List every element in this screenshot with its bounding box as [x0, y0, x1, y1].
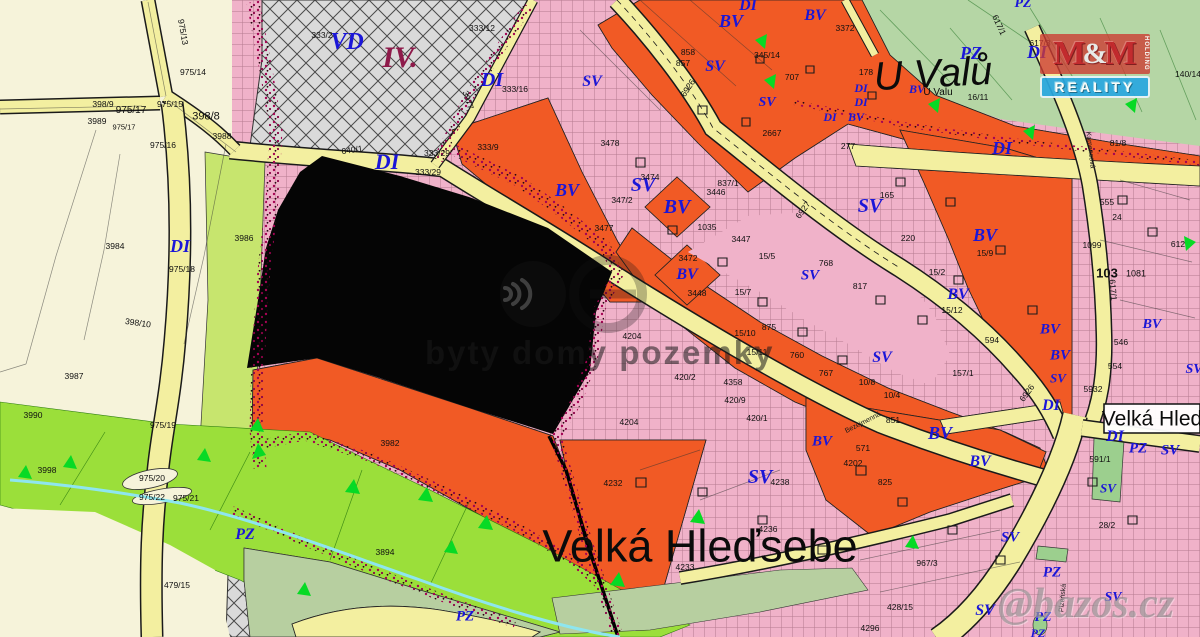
num-label-333-16: 333/16 — [502, 85, 528, 94]
zl-label-SV: SV — [705, 59, 725, 75]
num-label-554: 554 — [1108, 362, 1122, 371]
num-label-875: 875 — [762, 323, 776, 332]
num-label-3447: 3447 — [732, 235, 751, 244]
num-label-4202: 4202 — [844, 459, 863, 468]
num-label-15-12: 15/12 — [941, 306, 962, 315]
num-label-617-1: 617/1 — [1108, 279, 1118, 301]
zl-label-BV: BV — [973, 226, 997, 244]
num-label-3986: 3986 — [235, 234, 254, 243]
zl-label-DI: DI — [992, 139, 1012, 157]
num-label-420-9: 420/9 — [724, 396, 745, 405]
num-label-975-16: 975/16 — [150, 141, 176, 150]
street-label-Bezejmenn-: Bezejmenná — [844, 411, 882, 435]
num-label-3998: 3998 — [38, 466, 57, 475]
num-label-3478: 3478 — [601, 139, 620, 148]
num-label-420-1: 420/1 — [746, 414, 767, 423]
zl-label-PZ: PZ — [1034, 611, 1051, 625]
num-label-571: 571 — [856, 444, 870, 453]
zl-label-SV: SV — [1104, 591, 1121, 605]
zl-label-SV: SV — [1161, 444, 1179, 459]
num-label-3984: 3984 — [106, 242, 125, 251]
num-label-479-15: 479/15 — [164, 581, 190, 590]
logo-ampersand: & — [1083, 37, 1108, 71]
num-label-5932: 5932 — [1084, 385, 1103, 394]
num-label-3448: 3448 — [688, 289, 707, 298]
num-label-1035: 1035 — [698, 223, 717, 232]
zl-label-SV: SV — [872, 350, 892, 366]
zl-label-DI: DI — [170, 237, 190, 255]
zl-label-PZ: PZ — [1129, 442, 1147, 457]
zl-label-BV: BV — [969, 454, 990, 470]
num-label-398-9: 398/9 — [92, 100, 113, 109]
num-label-760: 760 — [790, 351, 804, 360]
zl-label-BV: BV — [676, 267, 697, 283]
num-label-333-29: 333/29 — [415, 168, 441, 177]
zl-label-BV: BV — [947, 287, 968, 303]
num-label-157-1: 157/1 — [952, 369, 973, 378]
zl-label-PZ: PZ — [1043, 566, 1061, 581]
street-label-Kamencov-: Kamencová — [1084, 131, 1095, 169]
num-label-4296: 4296 — [861, 624, 880, 633]
num-label-975-20: 975/20 — [139, 474, 165, 483]
num-label-6927: 6927 — [794, 200, 812, 220]
zl-label-BV: BV — [1040, 323, 1060, 338]
zl-label-SV: SV — [801, 269, 819, 284]
zl-label-SV: SV — [1001, 531, 1019, 546]
zl-label-BV: BV — [812, 435, 832, 450]
num-label-6926: 6926 — [1018, 383, 1036, 403]
num-label-15-7: 15/7 — [735, 288, 752, 297]
num-label-1081: 1081 — [1126, 270, 1146, 279]
num-label-591-1: 591/1 — [1089, 455, 1110, 464]
num-label-3982: 3982 — [381, 439, 400, 448]
num-label-707: 707 — [785, 73, 799, 82]
num-label-617-1: 617/1 — [991, 14, 1008, 37]
place-label-U-Valu: U Valu — [923, 88, 952, 98]
num-label-3977: 3977 — [461, 90, 475, 111]
zl-label-IV-: IV. — [382, 43, 417, 73]
num-label-10-4: 10/4 — [884, 391, 901, 400]
num-label-277: 277 — [841, 142, 855, 151]
num-label-555: 555 — [1100, 198, 1114, 207]
zl-label-SV: SV — [1100, 482, 1116, 495]
num-label-4238: 4238 — [771, 478, 790, 487]
num-label-3987: 3987 — [65, 372, 84, 381]
zl-label-BV: BV — [555, 181, 579, 199]
num-label-333-29: 333/29 — [424, 149, 450, 158]
zoning-map-canvas[interactable]: VDIV.DIDIDIDIBVBVSVSVSVSVBVBVBVSVSVSVBVB… — [0, 0, 1200, 637]
logo-letter-m1: M — [1053, 35, 1085, 73]
zl-label-BV: BV — [804, 8, 825, 24]
num-label-347-2: 347/2 — [611, 196, 632, 205]
num-label-81-8: 81/8 — [1110, 139, 1127, 148]
num-label-3477: 3477 — [595, 224, 614, 233]
map-labels-layer: VDIV.DIDIDIDIBVBVSVSVSVSVBVBVBVSVSVSVBVB… — [0, 0, 1200, 637]
zl-label-BV: BV — [848, 111, 864, 123]
num-label-767: 767 — [819, 369, 833, 378]
num-label-333-2: 333/2 — [311, 31, 332, 40]
num-label-967-3: 967/3 — [916, 559, 937, 568]
num-label-975-17: 975/17 — [113, 123, 136, 131]
zl-label-DI: DI — [375, 151, 399, 173]
num-label-975-18: 975/18 — [169, 265, 195, 274]
num-label-975-13: 975/13 — [177, 18, 190, 45]
num-label-857: 857 — [676, 59, 690, 68]
num-label-165: 165 — [880, 191, 894, 200]
zl-label-BV: BV — [719, 12, 743, 30]
zl-label-VD: VD — [330, 30, 363, 54]
num-label-851: 851 — [886, 416, 900, 425]
zl-label-DI: DI — [481, 70, 503, 90]
num-label-546: 546 — [1114, 338, 1128, 347]
num-label-15-10: 15/10 — [734, 329, 755, 338]
num-label-220: 220 — [901, 234, 915, 243]
num-label-398-10: 398/10 — [125, 317, 152, 329]
zl-label-DI: DI — [1106, 429, 1124, 445]
num-label-3990: 3990 — [24, 411, 43, 420]
num-label-817: 817 — [853, 282, 867, 291]
num-label-3446: 3446 — [707, 188, 726, 197]
num-label-1099: 1099 — [1083, 241, 1102, 250]
num-label-3989: 3989 — [88, 117, 107, 126]
zl-label-PZ: PZ — [456, 610, 474, 625]
zl-label-DI: DI — [1042, 398, 1060, 414]
zl-label-PZ: PZ — [1014, 0, 1031, 11]
num-label-612: 612 — [1171, 240, 1185, 249]
num-label-6926: 6926 — [679, 78, 697, 98]
num-label-28-2: 28/2 — [1099, 521, 1116, 530]
zl-label-PZ: PZ — [235, 527, 255, 543]
num-label-3472: 3472 — [679, 254, 698, 263]
zl-label-SV: SV — [975, 603, 995, 619]
num-label-15-2: 15/2 — [929, 268, 946, 277]
num-label-103: 103 — [1096, 267, 1118, 280]
num-label-15-9: 15/9 — [977, 249, 994, 258]
zl-label-DI: DI — [854, 82, 867, 94]
num-label-345-14: 345/14 — [754, 51, 780, 60]
num-label-428-15: 428/15 — [887, 603, 913, 612]
num-label-975-15: 975/15 — [157, 100, 183, 109]
zl-label-SV: SV — [1050, 372, 1066, 385]
num-label-975-21: 975/21 — [173, 494, 199, 503]
num-label-858: 858 — [681, 48, 695, 57]
num-label-3372: 3372 — [836, 24, 855, 33]
num-label-975-19: 975/19 — [150, 421, 176, 430]
zl-label-SV: SV — [582, 74, 602, 90]
num-label-3988: 3988 — [213, 132, 232, 141]
zl-label-SV: SV — [858, 196, 882, 216]
zl-label-DI: DI — [854, 96, 867, 108]
logo-reality-bar: REALITY — [1040, 76, 1150, 98]
logo-holding-text: HOLDING — [1143, 36, 1149, 71]
num-label-15-11: 15/11 — [747, 348, 768, 357]
logo-letter-m2: M — [1105, 35, 1137, 73]
num-label-4204: 4204 — [620, 418, 639, 427]
num-label-140-14: 140/14 — [1175, 70, 1200, 79]
num-label-15-5: 15/5 — [759, 252, 776, 261]
num-label-3894: 3894 — [376, 548, 395, 557]
num-label-2667: 2667 — [763, 129, 782, 138]
num-label-4358: 4358 — [724, 378, 743, 387]
zl-label-BV: BV — [928, 424, 952, 442]
place-label-Velk-Hle-sebe: Velká Hleďsebe — [542, 524, 857, 569]
num-label-333-12: 333/12 — [469, 24, 495, 33]
num-label-4232: 4232 — [604, 479, 623, 488]
num-label-975-22: 975/22 — [139, 493, 165, 502]
num-label-4204: 4204 — [623, 332, 642, 341]
zl-label-BV: BV — [1143, 318, 1162, 332]
zl-label-BV: BV — [664, 197, 691, 217]
zl-label-SV: SV — [1185, 363, 1200, 377]
zl-label-PZ: PZ — [1031, 627, 1046, 637]
num-label-420-2: 420/2 — [674, 373, 695, 382]
num-label-768: 768 — [819, 259, 833, 268]
num-label-3474: 3474 — [641, 173, 660, 182]
zl-label-SV: SV — [748, 467, 772, 487]
num-label-10-8: 10/8 — [859, 378, 876, 387]
num-label-594: 594 — [985, 336, 999, 345]
num-label-24: 24 — [1112, 213, 1121, 222]
zl-label-SV: SV — [758, 96, 775, 110]
place-label-Velk-Hled: Velká Hled — [1102, 409, 1200, 430]
num-label-975-14: 975/14 — [180, 68, 206, 77]
num-label-825: 825 — [878, 478, 892, 487]
zl-label-BV: BV — [1050, 349, 1070, 364]
num-label-178: 178 — [859, 68, 873, 77]
zl-label-DI: DI — [823, 111, 836, 123]
street-label-Plze-sk-: Plzeňská — [1058, 584, 1067, 613]
num-label-333-9: 333/9 — [477, 143, 498, 152]
mm-reality-logo: M & M HOLDING REALITY — [1040, 34, 1150, 98]
num-label-398-8: 398/8 — [192, 112, 220, 123]
num-label-640-1: 640/1 — [341, 144, 363, 155]
num-label-975-17: 975/17 — [116, 106, 147, 116]
